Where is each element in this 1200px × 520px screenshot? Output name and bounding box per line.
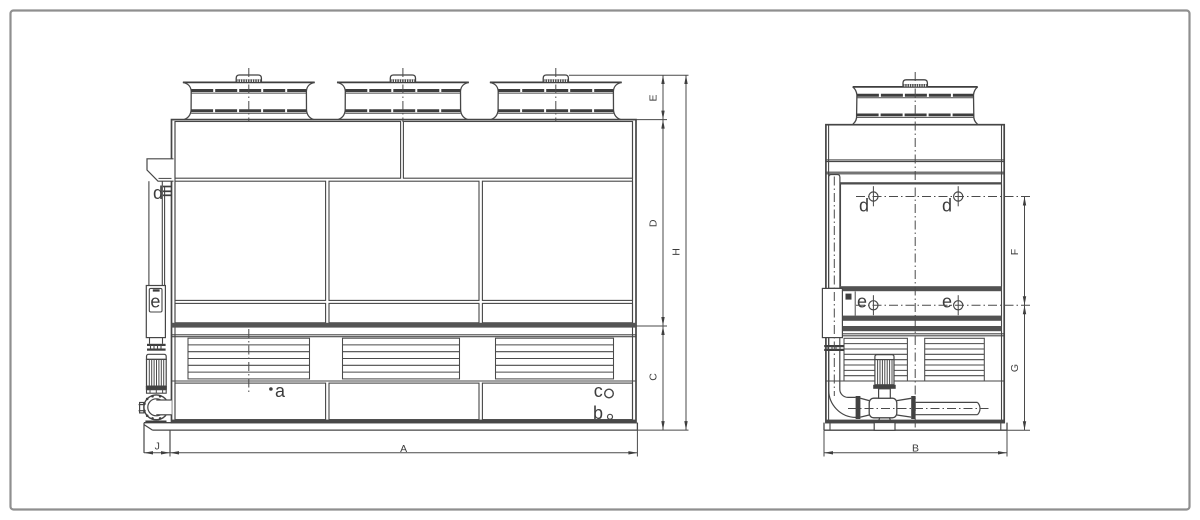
svg-text:E: E — [648, 94, 660, 101]
svg-text:e: e — [857, 292, 867, 312]
svg-text:c: c — [594, 381, 603, 401]
svg-text:A: A — [400, 443, 407, 455]
svg-text:e: e — [150, 291, 160, 311]
svg-text:G: G — [1009, 364, 1021, 372]
svg-text:B: B — [912, 443, 919, 455]
svg-text:F: F — [1009, 249, 1021, 255]
svg-text:J: J — [155, 441, 160, 453]
svg-text:C: C — [648, 373, 660, 381]
svg-text:a: a — [275, 381, 286, 401]
svg-text:d: d — [859, 196, 869, 216]
svg-text:d: d — [942, 196, 952, 216]
svg-text:d: d — [153, 183, 163, 203]
svg-text:e: e — [942, 292, 952, 312]
svg-text:H: H — [671, 248, 683, 256]
svg-text:b: b — [593, 403, 603, 423]
svg-text:D: D — [648, 219, 660, 227]
